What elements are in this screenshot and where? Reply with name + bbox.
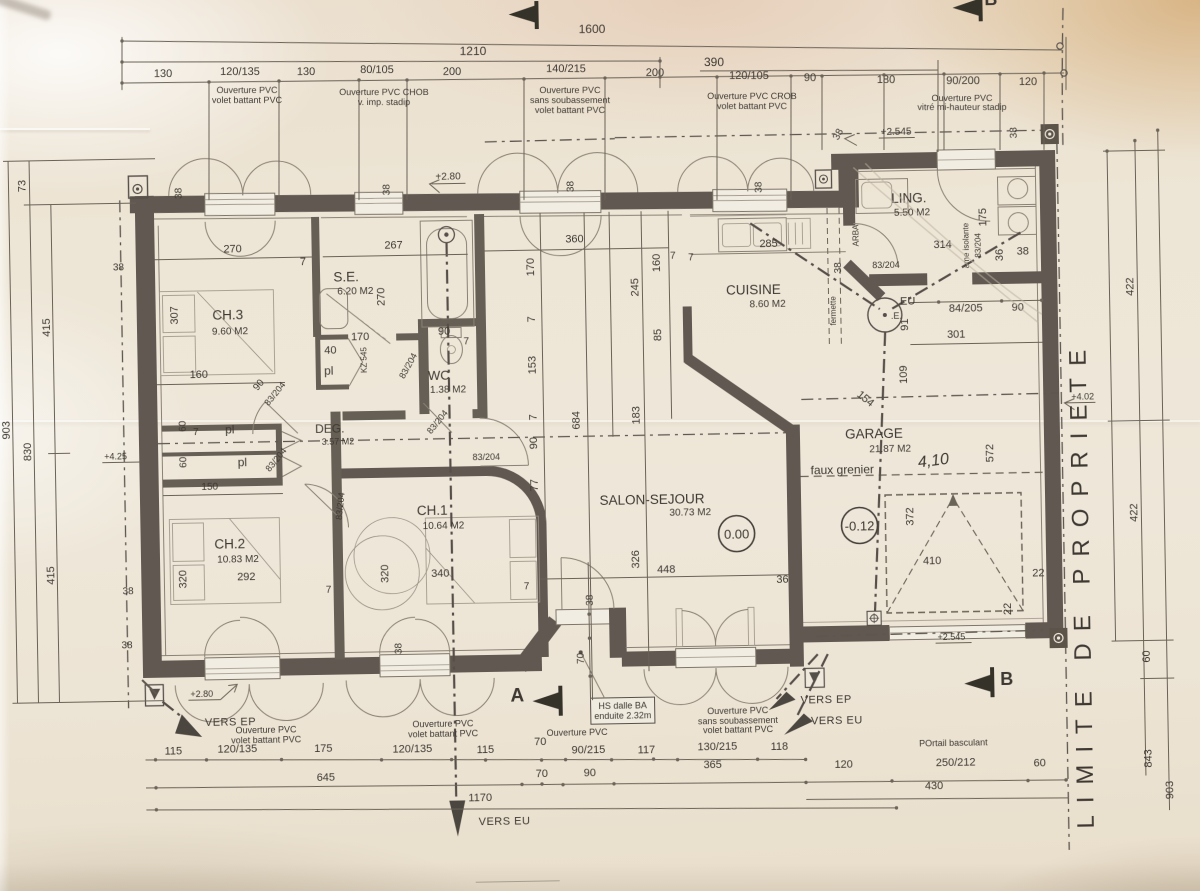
svg-text:430: 430 [925, 780, 944, 792]
svg-text:90: 90 [438, 326, 450, 338]
svg-text:200: 200 [443, 66, 461, 78]
svg-text:1.38 M2: 1.38 M2 [430, 384, 467, 396]
svg-text:38: 38 [174, 187, 185, 199]
svg-text:175: 175 [977, 208, 989, 227]
svg-text:360: 360 [565, 233, 584, 245]
svg-text:-0.12: -0.12 [845, 518, 875, 534]
svg-text:448: 448 [657, 564, 676, 576]
svg-text:415: 415 [45, 566, 57, 585]
svg-text:Ouverture PVC CROB: Ouverture PVC CROB [707, 91, 797, 101]
svg-text:120/105: 120/105 [729, 70, 769, 82]
svg-text:109: 109 [898, 365, 910, 384]
svg-text:Ouverture PVC: Ouverture PVC [547, 727, 609, 738]
svg-text:LIMITE DE PROPRIETE: LIMITE DE PROPRIETE [1064, 338, 1100, 829]
svg-text:160: 160 [651, 254, 663, 273]
svg-text:enduite 2.32m: enduite 2.32m [594, 710, 651, 721]
svg-text:180: 180 [877, 74, 895, 86]
svg-text:7: 7 [526, 316, 538, 322]
svg-text:6.20 M2: 6.20 M2 [337, 286, 374, 298]
svg-text:130: 130 [154, 68, 172, 80]
svg-text:Ouverture PVC: Ouverture PVC [216, 85, 278, 95]
svg-text:91: 91 [899, 318, 911, 330]
svg-text:DEG.: DEG. [315, 421, 345, 436]
svg-text:60: 60 [178, 420, 189, 432]
svg-text:7: 7 [463, 336, 469, 347]
svg-text:pl: pl [238, 455, 248, 469]
svg-text:38: 38 [1009, 127, 1020, 139]
svg-text:A: A [510, 685, 524, 706]
svg-text:120/135: 120/135 [392, 743, 432, 756]
svg-text:85: 85 [652, 329, 664, 341]
svg-text:9.60 M2: 9.60 M2 [212, 326, 249, 338]
svg-text:38: 38 [565, 180, 576, 192]
svg-text:150: 150 [201, 482, 218, 493]
svg-text:8.60 M2: 8.60 M2 [749, 299, 786, 311]
svg-text:326: 326 [630, 550, 642, 569]
svg-text:90: 90 [584, 767, 596, 779]
svg-text:1170: 1170 [468, 792, 492, 804]
svg-text:60: 60 [1033, 757, 1045, 769]
svg-text:270: 270 [375, 288, 387, 307]
svg-text:90: 90 [804, 72, 816, 84]
svg-text:+2.545: +2.545 [937, 632, 965, 642]
svg-text:170: 170 [351, 331, 370, 343]
svg-text:160: 160 [190, 369, 209, 381]
svg-text:140/215: 140/215 [546, 63, 586, 75]
svg-text:7: 7 [670, 251, 676, 262]
svg-text:38: 38 [122, 586, 134, 597]
svg-text:90: 90 [251, 377, 267, 393]
svg-text:10.83 M2: 10.83 M2 [217, 554, 259, 566]
svg-text:Ouverture PVC CHOB: Ouverture PVC CHOB [339, 87, 429, 97]
svg-text:21.87 M2: 21.87 M2 [869, 444, 911, 456]
svg-text:POrtail basculant: POrtail basculant [919, 737, 988, 748]
svg-text:270: 270 [223, 243, 242, 255]
svg-text:170: 170 [525, 258, 537, 277]
svg-text:vitré mi-hauteur stadip: vitré mi-hauteur stadip [917, 102, 1006, 112]
svg-text:7: 7 [300, 256, 306, 268]
svg-text:410: 410 [923, 555, 942, 567]
svg-text:CH.2: CH.2 [214, 536, 245, 552]
svg-text:GARAGE: GARAGE [845, 426, 903, 442]
svg-text:SALON-SEJOUR: SALON-SEJOUR [599, 491, 705, 508]
svg-text:pl: pl [324, 364, 334, 378]
svg-text:7: 7 [326, 585, 332, 596]
svg-text:B: B [984, 0, 997, 9]
svg-text:+4.25: +4.25 [104, 451, 127, 461]
svg-text:365: 365 [703, 759, 722, 771]
svg-text:40: 40 [324, 345, 336, 357]
svg-text:VERS EP: VERS EP [205, 716, 256, 729]
svg-text:volet battant PVC: volet battant PVC [408, 728, 479, 739]
svg-text:415: 415 [41, 318, 53, 337]
svg-text:faux grenier: faux grenier [810, 462, 874, 477]
svg-text:10.64 M2: 10.64 M2 [423, 520, 465, 532]
svg-text:422: 422 [1128, 503, 1140, 522]
svg-text:38: 38 [121, 640, 133, 651]
svg-text:VERS EU: VERS EU [479, 815, 531, 828]
svg-text:LING.: LING. [891, 190, 927, 206]
svg-text:83/204: 83/204 [334, 492, 347, 520]
svg-text:B: B [1000, 669, 1013, 689]
svg-text:120: 120 [1019, 76, 1037, 88]
svg-text:38: 38 [394, 642, 405, 654]
svg-text:7: 7 [524, 581, 530, 592]
svg-text:ARBA: ARBA [851, 224, 860, 247]
svg-text:CUISINE: CUISINE [726, 282, 781, 298]
svg-text:+2.545: +2.545 [881, 127, 912, 139]
svg-text:38: 38 [381, 184, 392, 196]
svg-text:340: 340 [431, 568, 450, 580]
svg-text:572: 572 [984, 444, 996, 463]
svg-text:77: 77 [529, 479, 541, 491]
svg-text:250/212: 250/212 [936, 756, 976, 769]
svg-text:7: 7 [688, 252, 694, 263]
svg-text:pl: pl [225, 422, 235, 436]
svg-text:S.E.: S.E. [333, 269, 359, 284]
svg-text:83/204: 83/204 [397, 351, 419, 380]
svg-text:154: 154 [854, 389, 876, 410]
svg-text:WC: WC [428, 368, 450, 383]
svg-text:422: 422 [1124, 277, 1136, 296]
svg-text:volet battant PVC: volet battant PVC [703, 724, 774, 735]
svg-text:83/204: 83/204 [263, 446, 288, 474]
svg-text:645: 645 [317, 772, 336, 784]
svg-text:KZ 545: KZ 545 [359, 347, 368, 373]
svg-text:307: 307 [169, 306, 181, 325]
svg-text:38: 38 [585, 594, 596, 606]
svg-text:36: 36 [776, 574, 788, 586]
svg-text:120: 120 [834, 759, 853, 771]
svg-text:903: 903 [1, 421, 13, 440]
svg-text:38: 38 [1017, 245, 1029, 257]
svg-text:fermette: fermette [829, 296, 839, 326]
svg-text:volet battant PVC: volet battant PVC [212, 95, 283, 105]
svg-text:38: 38 [113, 262, 125, 273]
svg-text:292: 292 [237, 571, 256, 583]
svg-text:1600: 1600 [579, 22, 606, 36]
svg-text:175: 175 [314, 743, 333, 755]
svg-text:320: 320 [379, 564, 391, 583]
svg-text:22: 22 [1002, 603, 1014, 615]
svg-text:320: 320 [177, 570, 189, 589]
svg-text:70: 70 [534, 736, 546, 748]
svg-text:70: 70 [536, 768, 548, 780]
svg-text:83/204: 83/204 [973, 233, 982, 258]
svg-text:390: 390 [704, 55, 724, 69]
svg-text:EU: EU [900, 295, 916, 307]
svg-text:3.57 M2: 3.57 M2 [322, 436, 355, 447]
svg-text:7: 7 [193, 427, 199, 438]
svg-text:38: 38 [833, 262, 844, 274]
svg-text:7: 7 [528, 414, 540, 420]
svg-text:372: 372 [904, 507, 916, 526]
svg-text:83/204: 83/204 [472, 452, 500, 462]
svg-text:sans soubassement: sans soubassement [530, 95, 611, 105]
svg-text:1210: 1210 [460, 44, 487, 58]
svg-text:VERS EP: VERS EP [800, 694, 851, 707]
svg-text:90: 90 [1012, 302, 1024, 314]
svg-text:0.00: 0.00 [724, 526, 750, 541]
svg-text:volet battant PVC: volet battant PVC [231, 734, 302, 745]
svg-text:36: 36 [994, 249, 1006, 261]
svg-text:245: 245 [629, 278, 641, 297]
svg-text:+2.80: +2.80 [190, 689, 213, 699]
svg-text:903: 903 [1164, 781, 1176, 800]
svg-text:70: 70 [576, 652, 587, 664]
svg-text:84/205: 84/205 [949, 302, 983, 315]
svg-text:285: 285 [759, 238, 778, 250]
svg-text:VERS EU: VERS EU [811, 714, 863, 727]
svg-text:830: 830 [22, 443, 34, 462]
svg-text:117: 117 [638, 744, 656, 756]
svg-text:843: 843 [1142, 749, 1154, 768]
svg-text:38: 38 [831, 127, 846, 142]
svg-text:118: 118 [771, 741, 789, 753]
svg-text:CH.1: CH.1 [417, 503, 448, 519]
svg-text:183: 183 [630, 406, 642, 425]
svg-text:CH.3: CH.3 [212, 307, 243, 323]
svg-text:267: 267 [384, 239, 403, 251]
svg-text:Ouverture PVC: Ouverture PVC [539, 85, 601, 95]
svg-text:4,10: 4,10 [917, 451, 950, 472]
svg-text:120/135: 120/135 [220, 66, 260, 78]
svg-text:volet battant PVC: volet battant PVC [535, 105, 606, 115]
svg-text:v. imp. stadip: v. imp. stadip [358, 97, 410, 107]
svg-text:153: 153 [527, 356, 539, 375]
svg-text:83/204: 83/204 [872, 260, 900, 270]
svg-text:684: 684 [570, 411, 582, 430]
svg-text:+2.80: +2.80 [435, 171, 461, 182]
svg-text:90/215: 90/215 [571, 744, 605, 757]
svg-text:90/200: 90/200 [946, 75, 980, 87]
svg-text:volet battant PVC: volet battant PVC [717, 101, 788, 111]
svg-text:115: 115 [164, 745, 182, 757]
svg-text:80/105: 80/105 [360, 64, 394, 76]
svg-text:38: 38 [754, 181, 765, 193]
svg-text:130: 130 [297, 66, 315, 78]
svg-text:115: 115 [477, 744, 495, 756]
svg-text:30.73 M2: 30.73 M2 [669, 507, 711, 519]
svg-text:60: 60 [1141, 650, 1153, 662]
svg-text:130/215: 130/215 [697, 741, 737, 754]
svg-text:22: 22 [1032, 567, 1044, 579]
svg-text:60: 60 [178, 456, 189, 468]
svg-text:90: 90 [528, 437, 540, 449]
svg-text:301: 301 [947, 329, 966, 341]
svg-text:73: 73 [16, 180, 28, 192]
